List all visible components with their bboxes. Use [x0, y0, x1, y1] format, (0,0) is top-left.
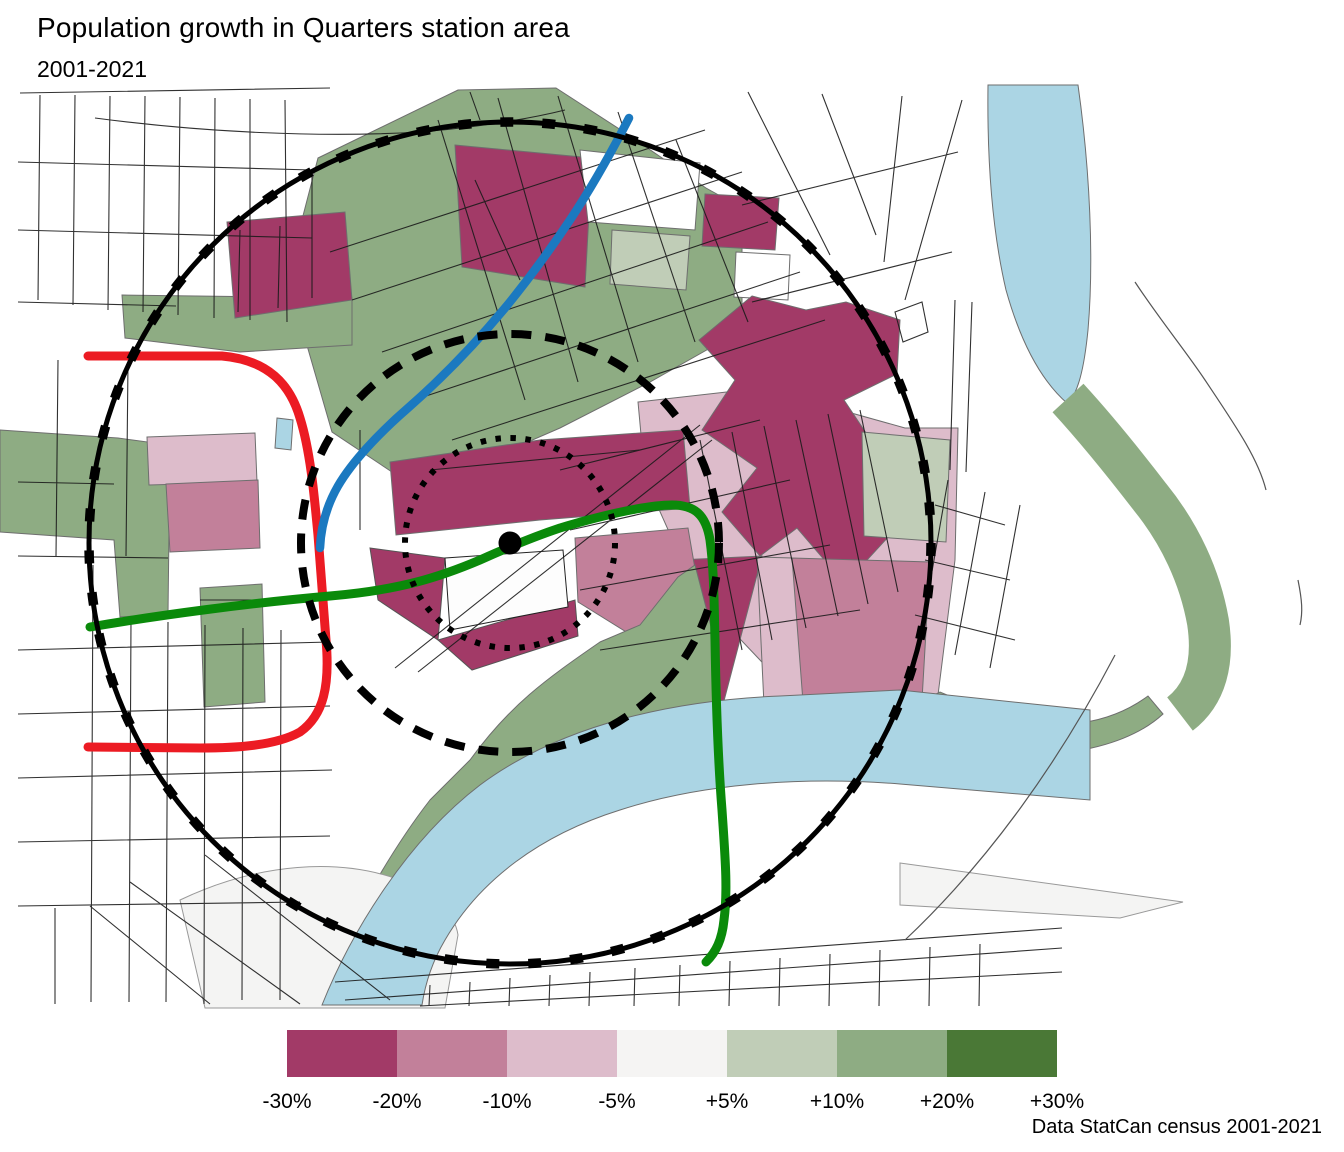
- legend-label: +5%: [672, 1090, 782, 1114]
- growth-area-magenta-left: [227, 212, 352, 318]
- page-subtitle: 2001-2021: [37, 56, 147, 83]
- legend-swatch: [287, 1030, 397, 1077]
- river-north-arm: [988, 85, 1091, 404]
- page-title: Population growth in Quarters station ar…: [37, 12, 570, 44]
- legend-label: -5%: [562, 1090, 672, 1114]
- growth-area-green-west: [0, 430, 170, 617]
- legend-label: +20%: [892, 1090, 1002, 1114]
- legend-swatch: [617, 1030, 727, 1077]
- growth-area-lightgreen-east: [862, 432, 950, 542]
- street-network-secondary: [905, 282, 1302, 940]
- legend-swatch: [397, 1030, 507, 1077]
- legend-label: -10%: [452, 1090, 562, 1114]
- legend-color-bar: [287, 1030, 1057, 1077]
- legend-swatch: [947, 1030, 1057, 1077]
- figure-canvas: Population growth in Quarters station ar…: [0, 0, 1344, 1152]
- legend-label: -20%: [342, 1090, 452, 1114]
- pond: [275, 418, 293, 450]
- legend-label: +30%: [1002, 1090, 1112, 1114]
- growth-area-lightpink-left: [147, 433, 257, 485]
- legend: -30% -20% -10% -5% +5% +10% +20% +30%: [0, 1028, 1344, 1128]
- growth-area-green-bank: [1068, 398, 1210, 714]
- growth-area-lightgreen-ne: [610, 230, 690, 290]
- station-marker: [499, 532, 522, 555]
- map-canvas: [0, 80, 1344, 1010]
- legend-swatch: [727, 1030, 837, 1077]
- legend-label: -30%: [232, 1090, 342, 1114]
- legend-label: +10%: [782, 1090, 892, 1114]
- legend-swatch: [837, 1030, 947, 1077]
- legend-swatch: [507, 1030, 617, 1077]
- growth-area-pink-left: [166, 480, 260, 552]
- attribution: Data StatCan census 2001-2021: [1032, 1116, 1322, 1139]
